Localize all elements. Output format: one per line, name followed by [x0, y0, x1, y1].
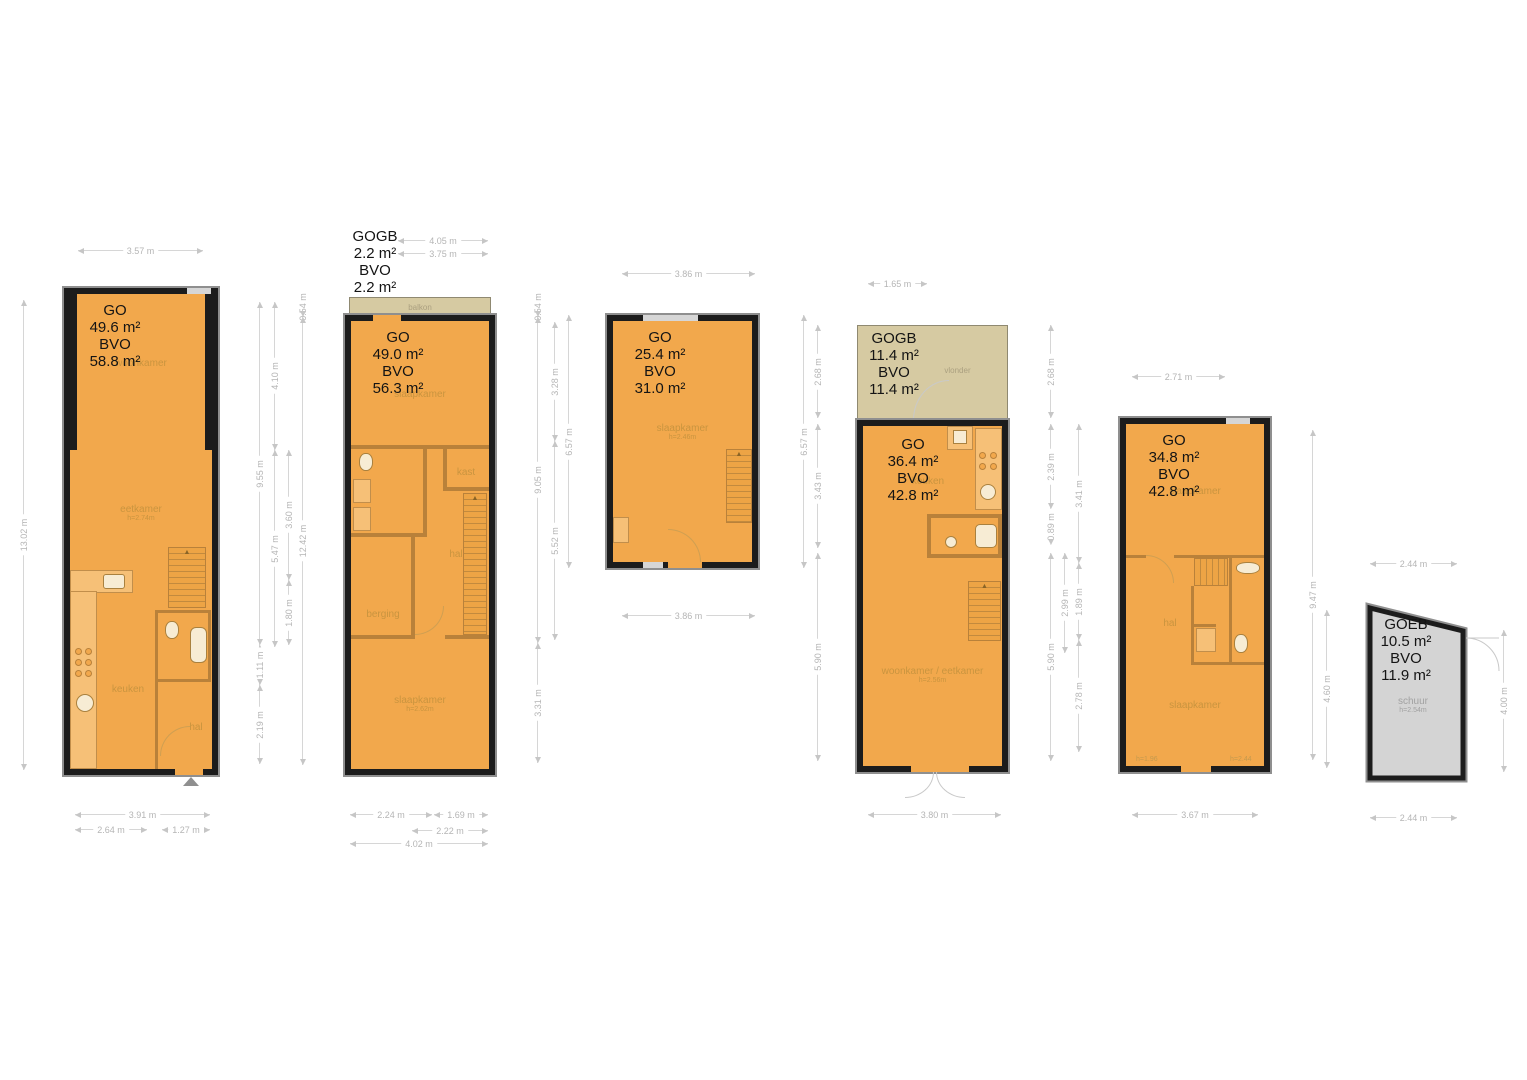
- dimension-label: 1.11 m: [255, 648, 265, 683]
- height-label: h=1.96: [1136, 756, 1158, 763]
- dimension-label: 3.43 m: [813, 468, 823, 504]
- dimension-horizontal: 2.71 m: [1132, 376, 1225, 377]
- dimension-label: 3.67 m: [1177, 810, 1213, 820]
- gogb-value: 11.4 m²: [864, 347, 924, 364]
- dimension-label: 4.10 m: [270, 358, 280, 394]
- toilet: [165, 621, 179, 639]
- wall: [70, 294, 77, 450]
- gogb-label: GOGB: [346, 228, 404, 245]
- dimension-vertical: 1.80 m: [288, 580, 289, 645]
- door-opening: [175, 769, 203, 775]
- bvo-label: BVO: [361, 363, 435, 380]
- stove-burner: [85, 659, 92, 666]
- go-label: GO: [1136, 432, 1212, 449]
- goeb-label: GOEB: [1374, 616, 1438, 633]
- dimension-vertical: 5.90 m: [1050, 553, 1051, 761]
- go-label: GO: [78, 302, 152, 319]
- dimension-horizontal: 3.67 m: [1132, 814, 1258, 815]
- area-summary: GO 25.4 m² BVO 31.0 m²: [623, 329, 697, 397]
- stove-burner: [85, 670, 92, 677]
- window: [1226, 418, 1250, 424]
- stove-burner: [75, 648, 82, 655]
- dimension-vertical: 1.89 m: [1078, 563, 1079, 640]
- dimension-label: 12.42 m: [298, 521, 308, 562]
- dimension-label: 2.44 m: [1396, 559, 1432, 569]
- dimension-horizontal: 3.86 m: [622, 273, 755, 274]
- go-value: 25.4 m²: [623, 346, 697, 363]
- dimension-label: 4.00 m: [1499, 683, 1509, 719]
- room-label-hal: hal: [1140, 618, 1200, 629]
- bvo-label: BVO: [78, 336, 152, 353]
- appliance: [76, 694, 94, 712]
- bvo-value: 42.8 m²: [1136, 483, 1212, 500]
- stove-burner: [979, 463, 986, 470]
- stairs: ▲: [168, 547, 206, 608]
- room-label-hal: hal: [431, 549, 481, 560]
- dimension-label: 2.68 m: [813, 354, 823, 390]
- stove-burner: [990, 452, 997, 459]
- stove-burner: [75, 670, 82, 677]
- toilet: [359, 453, 373, 471]
- dimension-vertical: 0.54 m: [302, 297, 303, 317]
- dimension-vertical: 2.39 m: [1050, 424, 1051, 509]
- bvo-label: BVO: [864, 364, 924, 381]
- dimension-label: 3.86 m: [671, 269, 707, 279]
- washbasin: [353, 507, 371, 531]
- dimension-label: 3.60 m: [284, 497, 294, 533]
- dimension-vertical: 5.52 m: [554, 441, 555, 640]
- stove-burner: [979, 452, 986, 459]
- dimension-vertical: 3.60 m: [288, 450, 289, 580]
- bvo-label: BVO: [346, 262, 404, 279]
- dimension-vertical: 2.78 m: [1078, 640, 1079, 752]
- dimension-horizontal: 4.05 m: [398, 240, 488, 241]
- door-opening: [373, 315, 401, 321]
- dimension-vertical: 9.05 m: [537, 317, 538, 643]
- dimension-label: 6.57 m: [799, 424, 809, 460]
- dimension-label: 9.55 m: [255, 456, 265, 492]
- stove-burner: [75, 659, 82, 666]
- gogb-label: GOGB: [864, 330, 924, 347]
- room-label-kast: kast: [446, 467, 486, 478]
- go-value: 34.8 m²: [1136, 449, 1212, 466]
- room-label-berging: berging: [355, 609, 411, 620]
- dimension-label: 2.99 m: [1060, 585, 1070, 621]
- bathtub: [190, 627, 207, 663]
- dimension-vertical: 0.54 m: [537, 297, 538, 317]
- dimension-vertical: 12.42 m: [302, 317, 303, 765]
- dimension-label: 4.02 m: [401, 839, 437, 849]
- stove-burner: [990, 463, 997, 470]
- dimension-horizontal: 1.27 m: [162, 829, 210, 830]
- dimension-horizontal: 3.91 m: [75, 814, 210, 815]
- dimension-horizontal: 3.75 m: [398, 253, 488, 254]
- dimension-label: 2.78 m: [1074, 678, 1084, 714]
- stairs-arrow: ▲: [981, 583, 988, 590]
- go-label: GO: [623, 329, 697, 346]
- dimension-horizontal: 2.44 m: [1370, 563, 1457, 564]
- go-label: GO: [875, 436, 951, 453]
- floorplan-canvas: ▲ GO 49.6 m² BVO 58.8 m² woonkamer eetka…: [0, 0, 1527, 1080]
- dimension-label: 9.47 m: [1308, 577, 1318, 613]
- bvo-label: BVO: [1374, 650, 1438, 667]
- dimension-horizontal: 2.24 m: [350, 814, 432, 815]
- floorplan-level-3: ▲ GO 25.4 m² BVO 31.0 m² slaapkamer h=2.…: [607, 315, 758, 568]
- dimension-vertical: 3.28 m: [554, 322, 555, 441]
- stairs-arrow: ▲: [736, 451, 743, 458]
- dimension-vertical: 2.99 m: [1064, 553, 1065, 653]
- dimension-label: 0.89 m: [1046, 509, 1056, 545]
- dimension-vertical: 5.90 m: [817, 553, 818, 761]
- dimension-label: 2.24 m: [373, 810, 409, 820]
- door-arc: [668, 529, 701, 562]
- door-opening: [668, 562, 702, 568]
- stove-burner: [85, 648, 92, 655]
- dimension-label: 1.69 m: [443, 810, 479, 820]
- dimension-label: 1.65 m: [880, 279, 916, 289]
- dimension-label: 5.90 m: [813, 639, 823, 675]
- room-label-balkon: balkon: [350, 303, 490, 312]
- room-label-hal: hal: [166, 722, 226, 733]
- wall: [205, 294, 212, 450]
- door-arc: [905, 772, 934, 798]
- dimension-vertical: 9.47 m: [1312, 430, 1313, 760]
- dimension-vertical: 5.47 m: [274, 450, 275, 647]
- bathroom: [155, 610, 211, 682]
- go-label: GO: [361, 329, 435, 346]
- stairs: ▲: [726, 449, 752, 523]
- bvo-value: 58.8 m²: [78, 353, 152, 370]
- wall: [445, 635, 489, 639]
- dimension-label: 3.75 m: [425, 249, 461, 259]
- wall: [443, 487, 489, 491]
- dimension-label: 3.80 m: [917, 810, 953, 820]
- bathtub: [975, 524, 997, 548]
- dimension-label: 2.39 m: [1046, 449, 1056, 485]
- dimension-label: 3.91 m: [125, 810, 161, 820]
- appliance: [980, 484, 996, 500]
- dimension-horizontal: 3.57 m: [78, 250, 203, 251]
- go-value: 49.6 m²: [78, 319, 152, 336]
- wall: [423, 445, 427, 537]
- shower: [353, 479, 371, 503]
- room-label-schuur: schuur h=2.54m: [1378, 696, 1448, 715]
- bvo-value: 11.4 m²: [864, 381, 924, 398]
- bvo-value: 42.8 m²: [875, 487, 951, 504]
- bathroom: [927, 514, 1002, 558]
- go-value: 36.4 m²: [875, 453, 951, 470]
- goeb-value: 10.5 m²: [1374, 633, 1438, 650]
- dimension-vertical: 4.00 m: [1503, 630, 1504, 772]
- room-label-eetkamer: eetkamer h=2.74m: [70, 504, 212, 523]
- dimension-label: 2.19 m: [255, 707, 265, 743]
- dimension-label: 2.44 m: [1396, 813, 1432, 823]
- dimension-horizontal: 4.02 m: [350, 843, 488, 844]
- bvo-label: BVO: [623, 363, 697, 380]
- bvo-label: BVO: [875, 470, 951, 487]
- wall: [155, 682, 158, 769]
- dimension-horizontal: 1.65 m: [868, 283, 927, 284]
- dimension-label: 4.05 m: [425, 236, 461, 246]
- dimension-label: 5.52 m: [550, 523, 560, 559]
- area-summary: GO 49.0 m² BVO 56.3 m²: [361, 329, 435, 397]
- dimension-label: 2.68 m: [1046, 354, 1056, 390]
- dimension-label: 5.47 m: [270, 531, 280, 567]
- dimension-vertical: 1.11 m: [259, 645, 260, 685]
- dimension-label: 3.86 m: [671, 611, 707, 621]
- washbasin: [1236, 562, 1260, 574]
- dimension-label: 2.71 m: [1161, 372, 1197, 382]
- dimension-label: 3.31 m: [533, 685, 543, 721]
- dimension-vertical: 3.41 m: [1078, 424, 1079, 563]
- dimension-label: 3.41 m: [1074, 476, 1084, 512]
- door-arc: [1466, 638, 1499, 671]
- room-label-woonkamer-eetkamer: woonkamer / eetkamer h=2.56m: [863, 666, 1002, 685]
- goeb-summary: GOEB 10.5 m² BVO 11.9 m²: [1374, 616, 1438, 684]
- sink: [953, 430, 967, 444]
- dimension-vertical: 3.43 m: [817, 424, 818, 548]
- room-label-slaapkamer: slaapkamer h=2.62m: [351, 695, 489, 714]
- gogb-summary-balkon: GOGB 2.2 m² BVO 2.2 m²: [346, 228, 404, 296]
- kitchen-counter: [70, 591, 97, 769]
- dimension-horizontal: 2.44 m: [1370, 817, 1457, 818]
- dimension-horizontal: 3.80 m: [868, 814, 1001, 815]
- toilet: [1234, 634, 1248, 653]
- stairs: ▲: [968, 581, 1001, 641]
- north-marker: [183, 777, 199, 786]
- dimension-vertical: 3.31 m: [537, 643, 538, 763]
- window: [643, 562, 663, 568]
- area-summary: GO 34.8 m² BVO 42.8 m²: [1136, 432, 1212, 500]
- dimension-horizontal: 3.86 m: [622, 615, 755, 616]
- dimension-label: 2.64 m: [93, 825, 129, 835]
- height-label: h=2.44: [1230, 756, 1252, 763]
- shower: [1196, 628, 1216, 652]
- dimension-label: 1.89 m: [1074, 584, 1084, 620]
- dimension-label: 3.57 m: [123, 246, 159, 256]
- bvo-value: 2.2 m²: [346, 279, 404, 296]
- stairs-arrow: ▲: [184, 549, 191, 556]
- stairs-arrow: ▲: [472, 495, 479, 502]
- door-arc: [936, 772, 965, 798]
- dimension-vertical: 13.02 m: [23, 300, 24, 770]
- dimension-label: 6.57 m: [564, 424, 574, 460]
- door-arc: [1146, 555, 1174, 583]
- dimension-label: 13.02 m: [19, 515, 29, 556]
- gogb-value: 2.2 m²: [346, 245, 404, 262]
- dimension-horizontal: 2.22 m: [412, 830, 488, 831]
- floorplan-level-5: GO 34.8 m² BVO 42.8 m² slaapkamer hal sl…: [1120, 418, 1270, 772]
- wall: [351, 445, 489, 449]
- dimension-label: 9.05 m: [533, 462, 543, 498]
- dimension-vertical: 2.19 m: [259, 685, 260, 764]
- bvo-value: 31.0 m²: [623, 380, 697, 397]
- room-label-slaapkamer: slaapkamer: [1126, 700, 1264, 711]
- sink: [103, 574, 125, 589]
- wall: [1229, 555, 1232, 662]
- stairs: ▲: [463, 493, 487, 635]
- dimension-label: 4.60 m: [1322, 671, 1332, 707]
- floorplan-level-1: ▲ GO 49.6 m² BVO 58.8 m² woonkamer eetka…: [64, 288, 218, 775]
- dimension-horizontal: 1.69 m: [434, 814, 488, 815]
- room-label-keuken: keuken: [98, 684, 158, 695]
- dimension-horizontal: 2.64 m: [75, 829, 147, 830]
- dimension-label: 5.90 m: [1046, 639, 1056, 675]
- dimension-vertical: 2.68 m: [1050, 325, 1051, 418]
- go-value: 49.0 m²: [361, 346, 435, 363]
- floorplan-level-2: ▲ GO 49.0 m² BVO 56.3 m² slaapkamer kast…: [345, 315, 495, 775]
- window: [643, 315, 698, 321]
- toilet: [945, 536, 957, 548]
- dimension-label: 1.27 m: [168, 825, 204, 835]
- dimension-vertical: 2.68 m: [817, 325, 818, 418]
- dimension-vertical: 0.89 m: [1050, 509, 1051, 545]
- gogb-summary-vlonder: GOGB 11.4 m² BVO 11.4 m²: [864, 330, 924, 398]
- vlonder-area: vlonder GOGB 11.4 m² BVO 11.4 m²: [857, 325, 1008, 422]
- area-summary: GO 49.6 m² BVO 58.8 m²: [78, 302, 152, 370]
- door-arc: [415, 606, 444, 635]
- dimension-label: 1.80 m: [284, 595, 294, 631]
- wall: [351, 635, 415, 639]
- dimension-vertical: 6.57 m: [803, 315, 804, 568]
- cabinet: [613, 517, 629, 543]
- room-label-slaapkamer: slaapkamer h=2.46m: [613, 423, 752, 442]
- window: [187, 288, 211, 294]
- dimension-label: 2.22 m: [432, 826, 468, 836]
- door-opening: [1181, 766, 1211, 772]
- french-doors: [905, 772, 965, 800]
- stairs: [1194, 558, 1228, 586]
- dimension-vertical: 4.60 m: [1326, 610, 1327, 768]
- dimension-vertical: 4.10 m: [274, 302, 275, 450]
- area-summary: GO 36.4 m² BVO 42.8 m²: [875, 436, 951, 504]
- floorplan-level-4: ▲ GO 36.4 m² BVO 42.8 m² keuken woonkame…: [857, 420, 1008, 772]
- wall: [1191, 662, 1264, 665]
- bvo-value: 11.9 m²: [1374, 667, 1438, 684]
- wall: [351, 533, 427, 537]
- dimension-vertical: 9.55 m: [259, 302, 260, 645]
- bvo-label: BVO: [1136, 466, 1212, 483]
- wall: [1126, 555, 1146, 558]
- bvo-value: 56.3 m²: [361, 380, 435, 397]
- dimension-label: 3.28 m: [550, 364, 560, 400]
- dimension-vertical: 6.57 m: [568, 315, 569, 568]
